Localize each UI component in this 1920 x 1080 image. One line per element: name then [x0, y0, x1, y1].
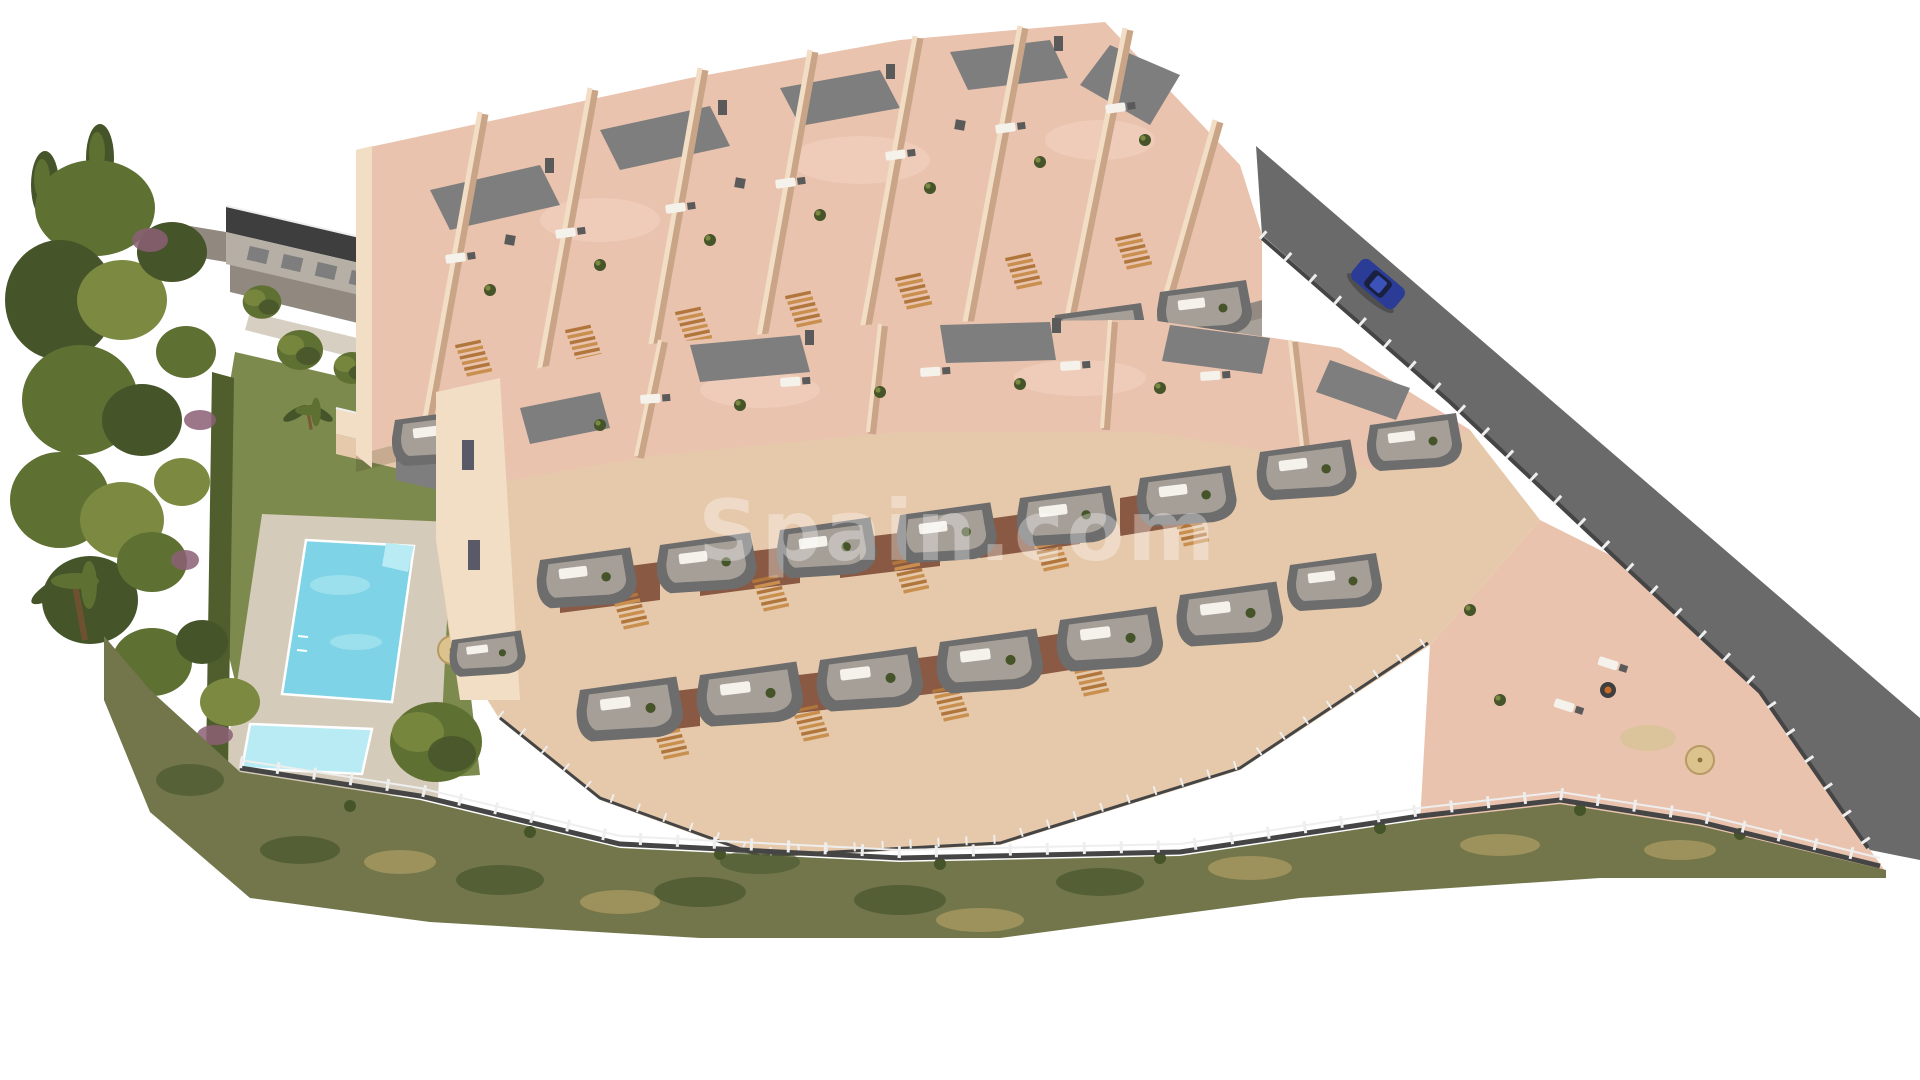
- round-rug: [1620, 725, 1676, 751]
- bush: [277, 330, 323, 370]
- terrace-plant: [1034, 156, 1046, 168]
- patio-plant: [1494, 694, 1506, 706]
- terrace-plant: [874, 386, 886, 398]
- terrace-plant: [594, 419, 606, 431]
- bush: [243, 285, 282, 319]
- terrace-plant: [1139, 134, 1151, 146]
- terrace-plant: [1014, 378, 1026, 390]
- terrace-plant: [734, 399, 746, 411]
- terrace-plant: [1154, 382, 1166, 394]
- flowering-shrub: [184, 410, 216, 430]
- flowering-shrub: [171, 550, 199, 570]
- terrace-plant: [814, 209, 826, 221]
- patio-plant: [1464, 604, 1476, 616]
- garden-tree: [390, 702, 482, 782]
- kids-pool: [242, 724, 372, 774]
- render-canvas: Spain.com: [0, 0, 1920, 1080]
- parasol: [1686, 746, 1714, 774]
- scene-svg: Spain.com: [0, 0, 1920, 1080]
- flowering-shrub: [132, 228, 168, 252]
- terrace-plant: [594, 259, 606, 271]
- watermark: Spain.com: [698, 482, 1218, 580]
- terrace-plant: [924, 182, 936, 194]
- terrace-plant: [704, 234, 716, 246]
- terrace-plant: [484, 284, 496, 296]
